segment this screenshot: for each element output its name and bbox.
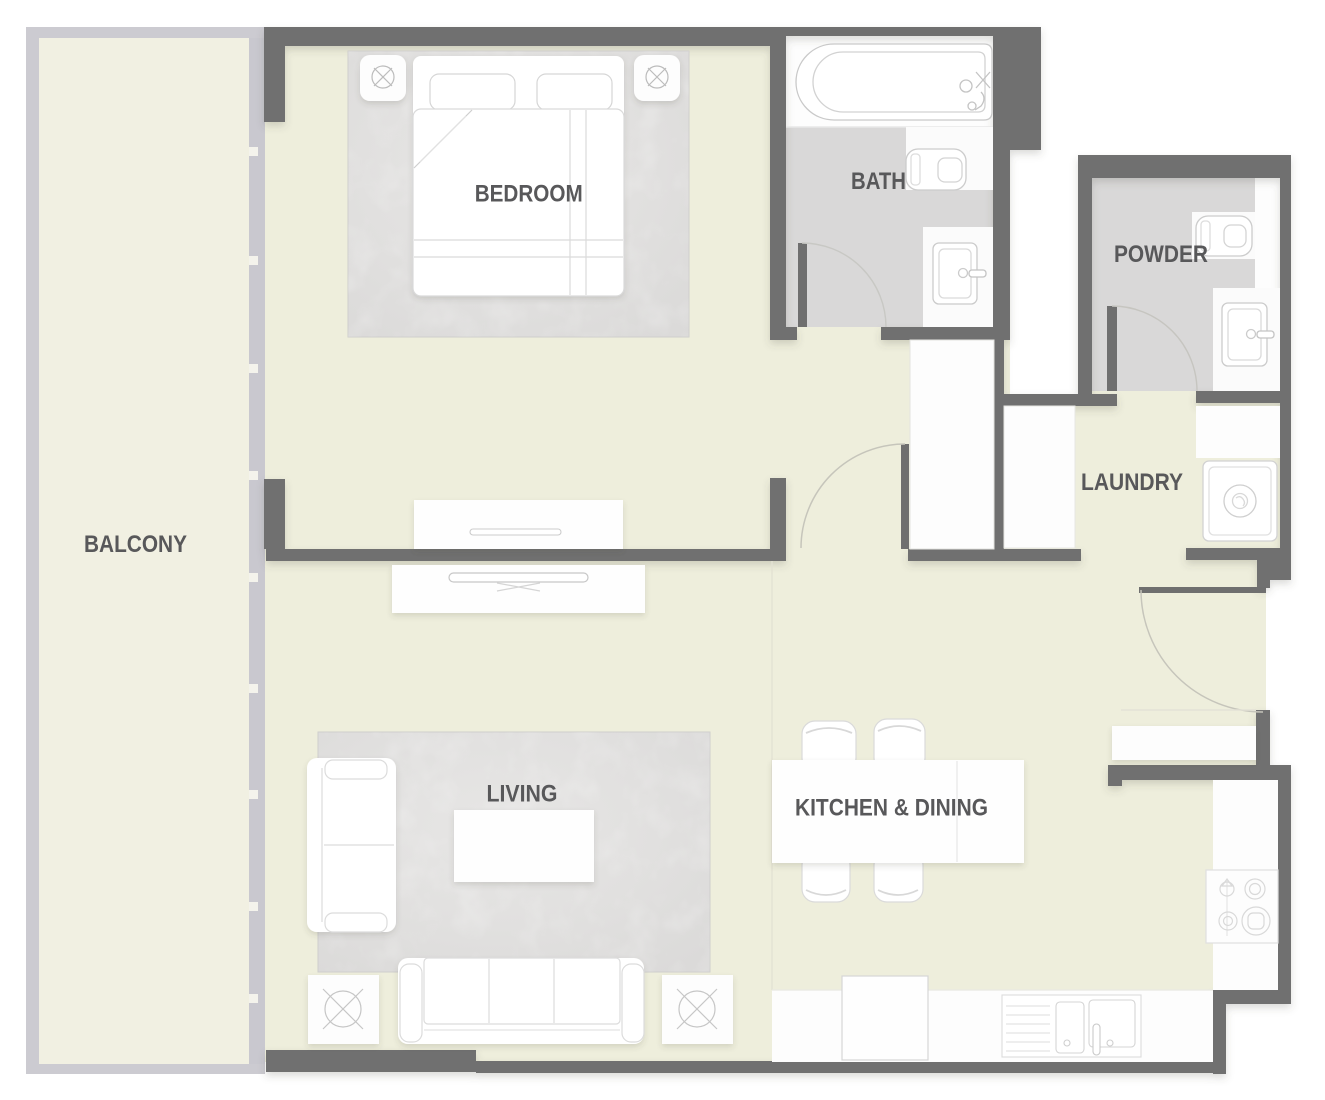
svg-text:BALCONY: BALCONY — [84, 531, 187, 558]
svg-text:LAUNDRY: LAUNDRY — [1081, 469, 1183, 496]
svg-text:POWDER: POWDER — [1114, 241, 1208, 268]
svg-text:BATH: BATH — [851, 168, 906, 195]
svg-text:BEDROOM: BEDROOM — [475, 181, 583, 208]
svg-text:KITCHEN & DINING: KITCHEN & DINING — [795, 795, 988, 822]
svg-text:LIVING: LIVING — [487, 781, 558, 808]
